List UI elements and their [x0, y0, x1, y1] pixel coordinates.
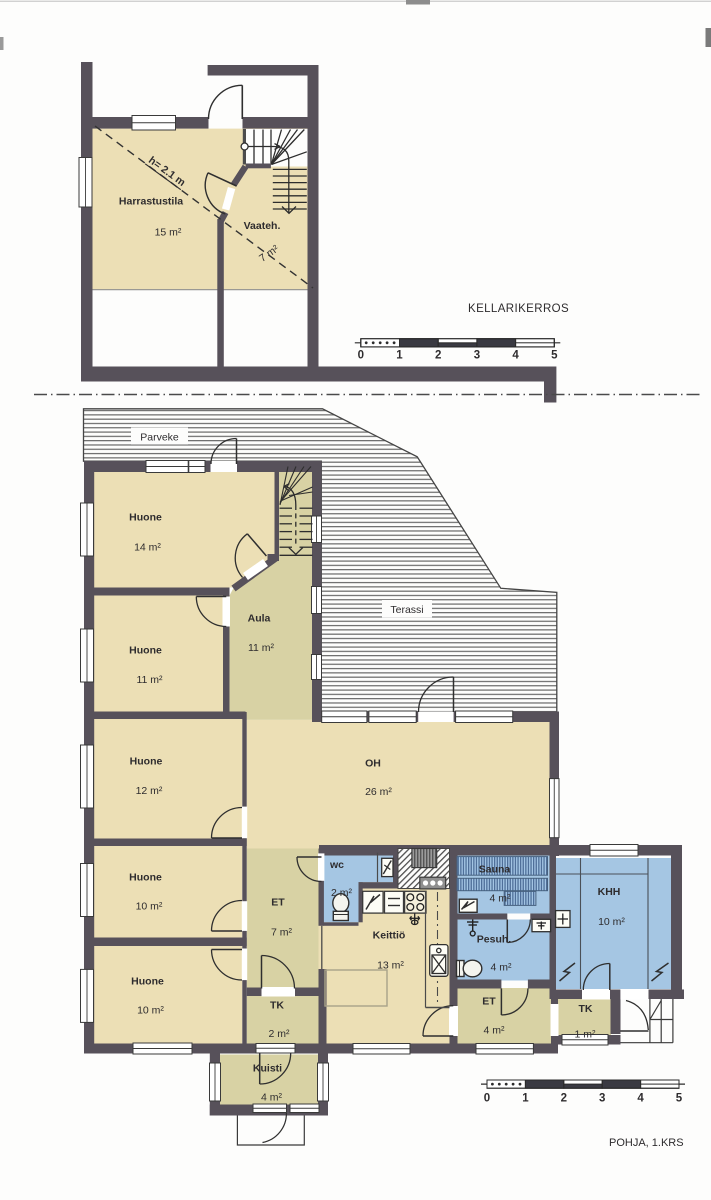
svg-text:1: 1	[522, 1093, 529, 1105]
svg-text:13 m²: 13 m²	[377, 960, 404, 972]
svg-text:3: 3	[599, 1093, 605, 1105]
svg-text:Kuisti: Kuisti	[253, 1063, 282, 1075]
svg-text:TK: TK	[270, 1000, 284, 1012]
svg-text:10 m²: 10 m²	[136, 901, 163, 913]
svg-text:0: 0	[484, 1093, 490, 1105]
svg-text:4 m²: 4 m²	[490, 893, 512, 905]
svg-text:4: 4	[512, 350, 519, 362]
svg-text:Terassi: Terassi	[390, 604, 423, 616]
svg-text:Huone: Huone	[131, 976, 164, 988]
svg-text:Huone: Huone	[129, 512, 162, 524]
svg-text:1 m²: 1 m²	[575, 1029, 597, 1041]
svg-text:2: 2	[561, 1093, 567, 1105]
svg-text:14 m²: 14 m²	[134, 542, 161, 554]
svg-text:15 m²: 15 m²	[155, 227, 182, 239]
svg-text:Huone: Huone	[129, 645, 162, 657]
svg-text:Pesuh.: Pesuh.	[477, 934, 512, 946]
svg-text:wc: wc	[329, 859, 344, 871]
svg-text:11 m²: 11 m²	[248, 642, 275, 654]
svg-text:26 m²: 26 m²	[365, 786, 392, 798]
svg-text:Harrastustila: Harrastustila	[119, 196, 183, 208]
svg-text:KHH: KHH	[598, 886, 621, 898]
svg-text:KELLARIKERROS: KELLARIKERROS	[468, 303, 569, 315]
svg-text:Huone: Huone	[129, 872, 162, 884]
svg-text:ET: ET	[271, 897, 285, 909]
svg-text:OH: OH	[365, 758, 381, 770]
svg-text:2 m²: 2 m²	[331, 887, 353, 899]
svg-text:10 m²: 10 m²	[137, 1005, 164, 1017]
svg-text:2: 2	[435, 350, 441, 362]
svg-text:10 m²: 10 m²	[598, 916, 625, 928]
svg-text:Parveke: Parveke	[140, 432, 179, 444]
svg-text:4 m²: 4 m²	[484, 1025, 506, 1037]
svg-text:0: 0	[358, 350, 364, 362]
svg-text:3: 3	[474, 350, 480, 362]
svg-text:11 m²: 11 m²	[136, 674, 163, 686]
svg-text:Huone: Huone	[130, 756, 163, 768]
svg-text:5: 5	[676, 1093, 683, 1105]
svg-text:Aula: Aula	[248, 613, 271, 625]
svg-text:2 m²: 2 m²	[269, 1028, 291, 1040]
svg-text:12 m²: 12 m²	[136, 785, 163, 797]
svg-text:5: 5	[551, 350, 558, 362]
svg-text:1: 1	[396, 350, 403, 362]
svg-text:4 m²: 4 m²	[261, 1092, 283, 1104]
svg-text:Sauna: Sauna	[479, 864, 511, 876]
svg-text:4: 4	[637, 1093, 644, 1105]
svg-text:4 m²: 4 m²	[491, 962, 513, 974]
svg-text:Keittiö: Keittiö	[373, 930, 406, 942]
svg-text:Vaateh.: Vaateh.	[244, 220, 281, 232]
svg-text:POHJA, 1.KRS: POHJA, 1.KRS	[609, 1137, 684, 1149]
svg-text:ET: ET	[482, 996, 496, 1008]
svg-text:7 m²: 7 m²	[271, 927, 293, 939]
svg-text:TK: TK	[579, 1003, 593, 1015]
